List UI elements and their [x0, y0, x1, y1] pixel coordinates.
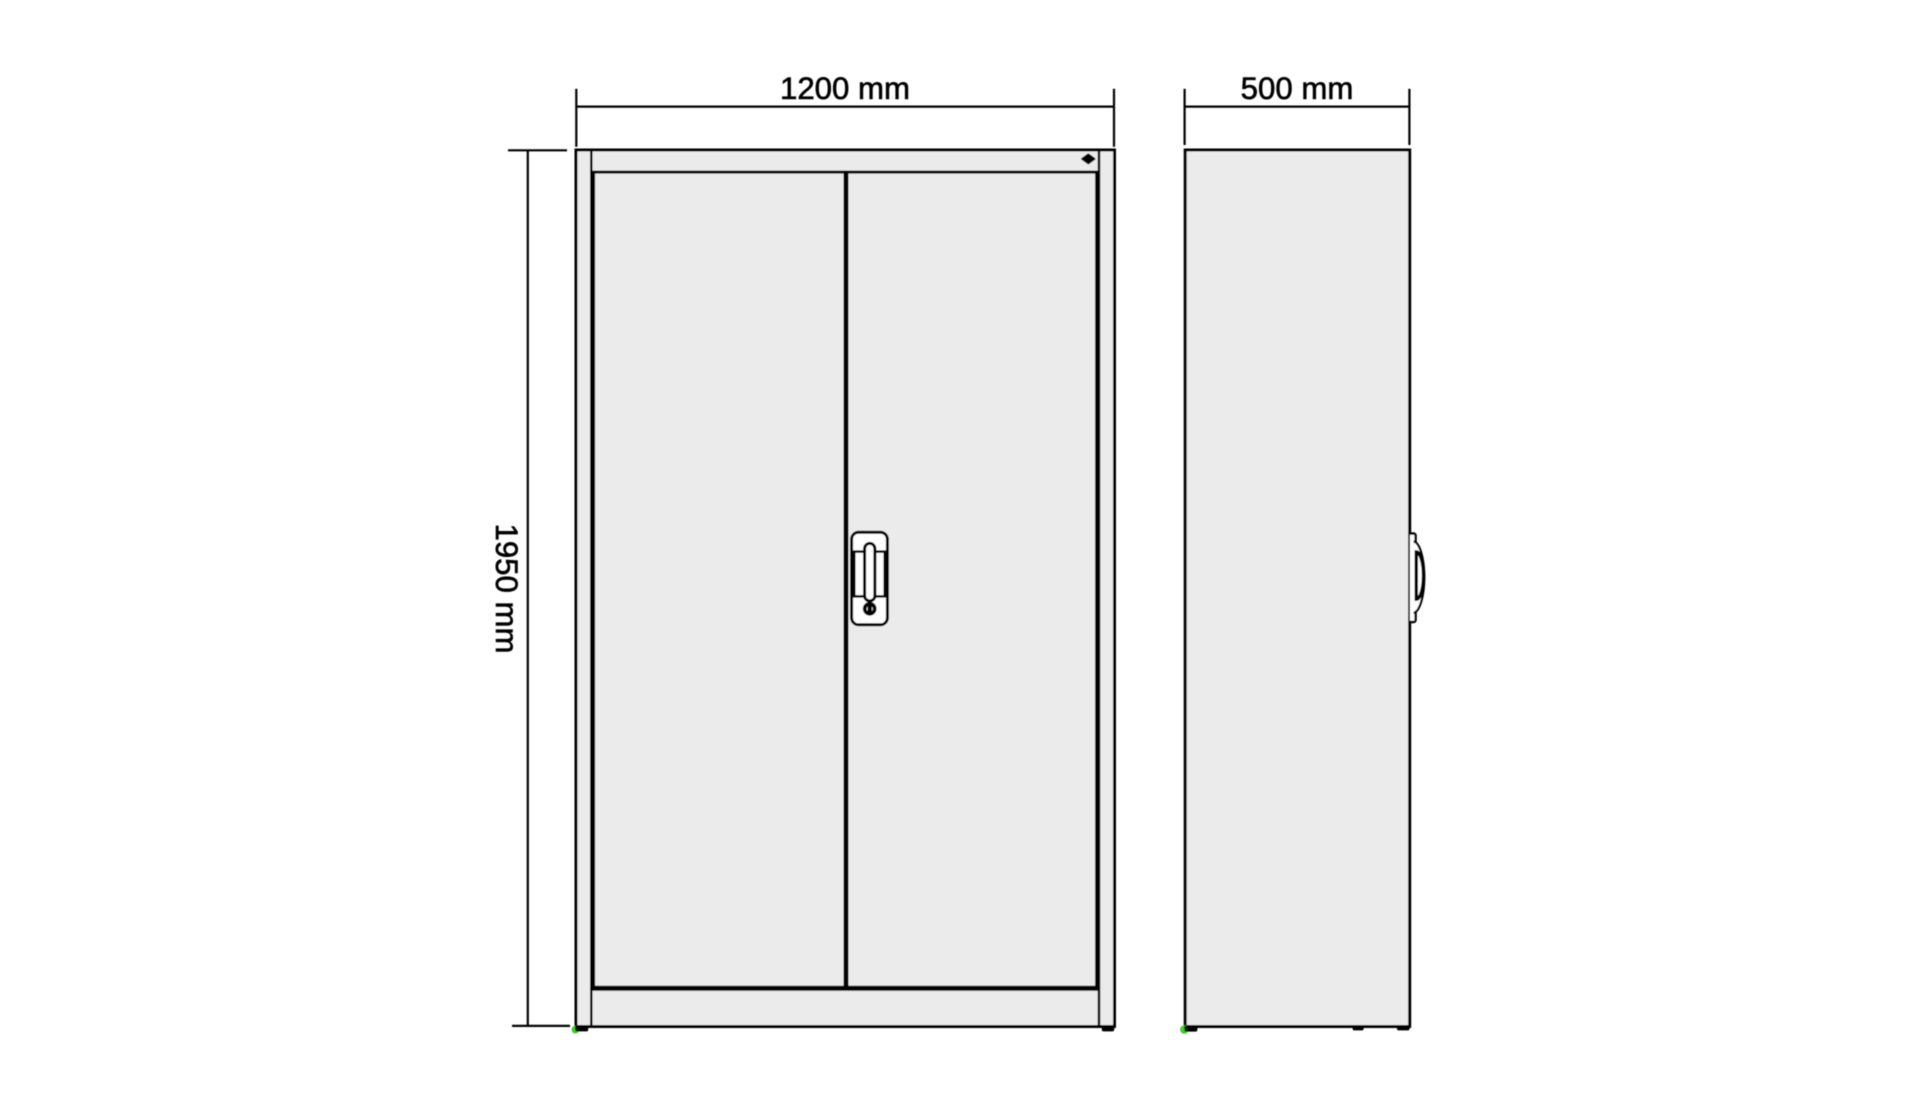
- svg-text:1950 mm: 1950 mm: [489, 523, 524, 653]
- svg-text:1200 mm: 1200 mm: [780, 71, 910, 106]
- svg-text:500 mm: 500 mm: [1241, 71, 1354, 106]
